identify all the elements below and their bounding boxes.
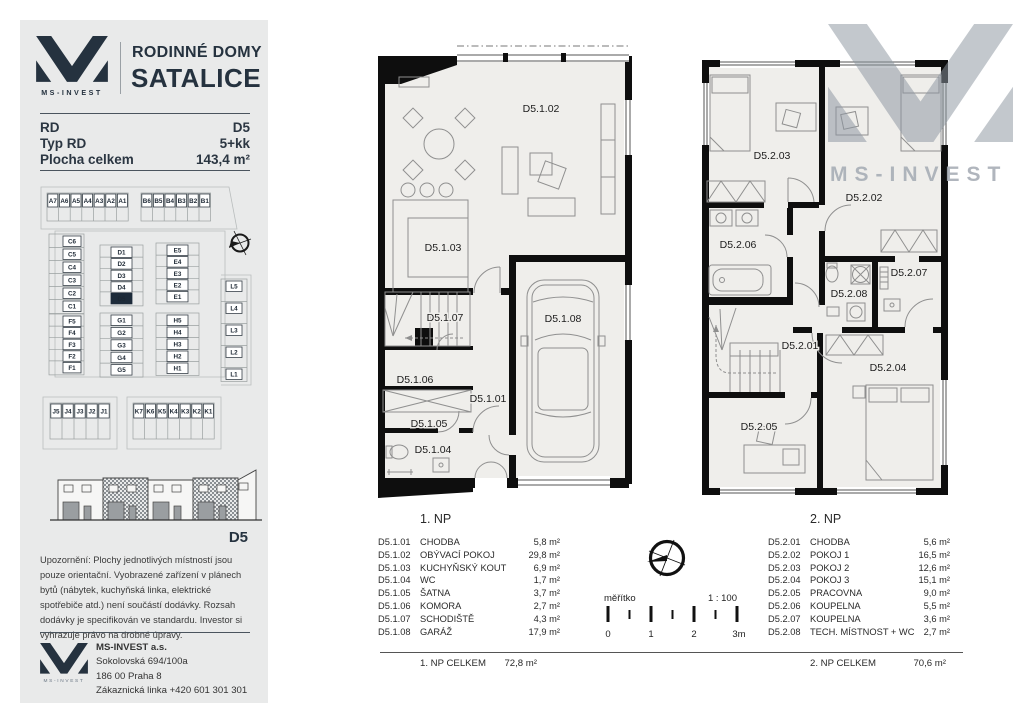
- legend-name: KOMORA: [420, 600, 534, 613]
- site-unit-label: D5: [117, 296, 126, 303]
- legend-row: D5.2.07KOUPELNA3,6 m²: [768, 613, 950, 626]
- watermark-text: MS-INVEST: [830, 163, 1024, 187]
- project-title: SATALICE: [131, 63, 261, 94]
- room-label: D5.2.06: [720, 239, 757, 251]
- scale-tick: 1: [648, 629, 653, 640]
- site-unit-label: J4: [64, 408, 72, 415]
- site-unit-label: H4: [173, 330, 182, 337]
- site-unit-label: H2: [173, 354, 182, 361]
- site-unit-label: C6: [68, 239, 77, 246]
- legend-row: D5.2.06KOUPELNA5,5 m²: [768, 600, 950, 613]
- legend-name: KOUPELNA: [810, 613, 924, 626]
- legend-area: 2,7 m²: [534, 600, 560, 613]
- info-value: 5+kk: [220, 136, 250, 151]
- site-unit-label: A4: [84, 198, 93, 205]
- elevation-drawing: D5: [50, 458, 265, 546]
- site-unit-label: A1: [118, 198, 127, 205]
- site-unit-label: F3: [68, 342, 76, 349]
- company-city: 186 00 Praha 8: [96, 670, 247, 684]
- site-unit-label: A6: [60, 198, 69, 205]
- legend-name: OBÝVACÍ POKOJ: [420, 549, 528, 562]
- site-unit-label: F5: [68, 319, 76, 326]
- total-2np: 2. NP CELKEM 70,6 m²: [810, 658, 946, 669]
- legend-code: D5.1.02: [378, 549, 420, 562]
- legend-code: D5.2.02: [768, 549, 810, 562]
- site-unit-label: K7: [135, 408, 144, 415]
- site-unit-label: B6: [143, 198, 152, 205]
- legend-area: 2,7 m²: [924, 626, 950, 639]
- scale-tick: 3m: [732, 629, 745, 640]
- north-compass-icon: [645, 536, 689, 580]
- room-label: D5.2.07: [891, 267, 928, 279]
- site-unit-label: K2: [193, 408, 202, 415]
- room-label: D5.2.01: [782, 340, 819, 352]
- legend-code: D5.2.05: [768, 587, 810, 600]
- site-unit-label: G1: [117, 318, 126, 325]
- legend-area: 16,5 m²: [918, 549, 950, 562]
- divider: [40, 113, 250, 114]
- site-unit-label: G4: [117, 355, 126, 362]
- room-label: D5.2.02: [846, 192, 883, 204]
- legend-row: D5.1.05ŠATNA3,7 m²: [378, 587, 560, 600]
- header-divider: [120, 42, 121, 94]
- legend-row: D5.1.04WC1,7 m²: [378, 574, 560, 587]
- floor-plan-1np: D5.1.02 D5.1.03 D5.1.07 D5.1.08 D5.1.06 …: [375, 40, 640, 510]
- site-unit-label: D1: [117, 250, 126, 257]
- legend-code: D5.2.07: [768, 613, 810, 626]
- legend-area: 1,7 m²: [534, 574, 560, 587]
- footer-logo-wordmark: MS-INVEST: [43, 678, 84, 684]
- footer-logo-icon: MS-INVEST: [40, 643, 88, 687]
- ms-invest-logo-icon: MS-INVEST: [36, 36, 108, 102]
- info-label: Plocha celkem: [40, 152, 134, 167]
- legend-rows: D5.2.01CHODBA5,6 m²D5.2.02POKOJ 116,5 m²…: [768, 536, 950, 638]
- legend-name: POKOJ 3: [810, 574, 918, 587]
- legend-row: D5.1.07SCHODIŠTĚ4,3 m²: [378, 613, 560, 626]
- legend-row: D5.2.05PRACOVNA9,0 m²: [768, 587, 950, 600]
- info-row-plocha: Plocha celkem 143,4 m²: [40, 152, 250, 167]
- site-unit-label: B1: [201, 198, 210, 205]
- legend-code: D5.1.03: [378, 562, 420, 575]
- site-unit-label: G2: [117, 330, 126, 337]
- site-unit-label: J1: [100, 408, 108, 415]
- room-label: D5.2.04: [870, 362, 907, 374]
- site-unit-label: L4: [230, 306, 238, 313]
- legend-name: POKOJ 2: [810, 562, 918, 575]
- footer-contact: MS-INVEST a.s. Sokolovská 694/100a 186 0…: [96, 641, 247, 699]
- legend-area: 15,1 m²: [918, 574, 950, 587]
- site-unit-label: F1: [68, 365, 76, 372]
- disclaimer-text: Upozornění: Plochy jednotlivých místnost…: [40, 553, 252, 643]
- site-units: A7A6A5A4A3A2A1B6B5B4B3B2B1C6C5C4C3C2C1D1…: [47, 193, 247, 439]
- room-label: D5.1.07: [427, 312, 464, 324]
- legend-area: 6,9 m²: [534, 562, 560, 575]
- scale-bar: 0 1 2 3m: [600, 606, 745, 644]
- legend-row: D5.2.01CHODBA5,6 m²: [768, 536, 950, 549]
- site-unit-label: H1: [173, 366, 182, 373]
- room-label: D5.1.08: [545, 313, 582, 325]
- info-value: D5: [233, 120, 250, 135]
- legend-code: D5.2.04: [768, 574, 810, 587]
- legend-name: PRACOVNA: [810, 587, 924, 600]
- site-unit-label: E1: [174, 294, 182, 301]
- legend-area: 12,6 m²: [918, 562, 950, 575]
- legend-name: GARÁŽ: [420, 626, 528, 639]
- room-label: D5.2.05: [741, 421, 778, 433]
- legend-code: D5.1.01: [378, 536, 420, 549]
- legend-row: D5.1.08GARÁŽ17,9 m²: [378, 626, 560, 639]
- info-row-typ: Typ RD 5+kk: [40, 136, 250, 151]
- legend-name: CHODBA: [420, 536, 534, 549]
- total-1np: 1. NP CELKEM 72,8 m²: [420, 658, 537, 669]
- legend-area: 3,7 m²: [534, 587, 560, 600]
- legend-rows: D5.1.01CHODBA5,8 m²D5.1.02OBÝVACÍ POKOJ2…: [378, 536, 560, 638]
- site-unit-label: K3: [181, 408, 190, 415]
- legend-name: POKOJ 1: [810, 549, 918, 562]
- total-label: 1. NP CELKEM: [420, 658, 486, 669]
- legend-area: 17,9 m²: [528, 626, 560, 639]
- legend-2np: 2. NP D5.2.01CHODBA5,6 m²D5.2.02POKOJ 11…: [768, 512, 950, 638]
- site-unit-label: C5: [68, 252, 77, 259]
- site-unit-label: E4: [174, 259, 182, 266]
- legend-area: 5,8 m²: [534, 536, 560, 549]
- site-unit-label: A3: [95, 198, 104, 205]
- site-plan: A7A6A5A4A3A2A1B6B5B4B3B2B1C6C5C4C3C2C1D1…: [25, 183, 270, 468]
- site-unit-label: L1: [230, 372, 238, 379]
- legend-row: D5.1.02OBÝVACÍ POKOJ29,8 m²: [378, 549, 560, 562]
- info-row-rd: RD D5: [40, 120, 250, 135]
- legend-code: D5.2.08: [768, 626, 810, 639]
- site-unit-label: J3: [76, 408, 84, 415]
- legend-row: D5.1.06KOMORA2,7 m²: [378, 600, 560, 613]
- site-unit-label: K1: [204, 408, 213, 415]
- sidebar-panel: MS-INVEST RODINNÉ DOMY SATALICE RD D5 Ty…: [20, 20, 268, 703]
- site-unit-label: E2: [174, 282, 182, 289]
- info-label: Typ RD: [40, 136, 86, 151]
- legend-title: 2. NP: [810, 512, 950, 526]
- total-value: 70,6 m²: [913, 658, 946, 669]
- scale-tick: 2: [691, 629, 696, 640]
- legend-name: KOUPELNA: [810, 600, 924, 613]
- legend-code: D5.2.06: [768, 600, 810, 613]
- site-unit-label: K4: [170, 408, 179, 415]
- legend-area: 5,6 m²: [924, 536, 950, 549]
- site-unit-label: L5: [230, 284, 238, 291]
- site-unit-label: L2: [230, 350, 238, 357]
- room-label: D5.1.01: [470, 393, 507, 405]
- room-label: D5.1.04: [415, 444, 452, 456]
- elevation-unit-label: D5: [229, 529, 248, 546]
- site-unit-label: A5: [72, 198, 81, 205]
- legend-name: WC: [420, 574, 534, 587]
- site-unit-label: K6: [146, 408, 155, 415]
- legend-area: 29,8 m²: [528, 549, 560, 562]
- legend-name: CHODBA: [810, 536, 924, 549]
- divider: [40, 170, 250, 171]
- legend-row: D5.2.03POKOJ 212,6 m²: [768, 562, 950, 575]
- legend-row: D5.2.04POKOJ 315,1 m²: [768, 574, 950, 587]
- watermark-logo-icon: [828, 24, 1013, 142]
- site-unit-label: E3: [174, 271, 182, 278]
- site-unit-label: G5: [117, 367, 126, 374]
- total-label: 2. NP CELKEM: [810, 658, 876, 669]
- site-unit-label: C2: [68, 291, 77, 298]
- room-label: D5.1.02: [523, 103, 560, 115]
- site-unit-label: B3: [178, 198, 187, 205]
- room-label: D5.1.05: [411, 418, 448, 430]
- site-unit-label: J2: [88, 408, 96, 415]
- site-unit-label: C4: [68, 265, 77, 272]
- site-unit-label: B4: [166, 198, 175, 205]
- legend-code: D5.1.06: [378, 600, 420, 613]
- scale-ratio: 1 : 100: [690, 593, 737, 604]
- legend-1np: 1. NP D5.1.01CHODBA5,8 m²D5.1.02OBÝVACÍ …: [378, 512, 560, 638]
- legend-row: D5.2.02POKOJ 116,5 m²: [768, 549, 950, 562]
- legend-name: KUCHYŇSKÝ KOUT: [420, 562, 534, 575]
- room-label: D5.1.06: [397, 374, 434, 386]
- legend-code: D5.1.08: [378, 626, 420, 639]
- site-compass-icon: [229, 231, 251, 255]
- company-phone: Zákaznická linka +420 601 301 301: [96, 684, 247, 698]
- scale-label: měřítko: [604, 593, 636, 604]
- legend-name: TECH. MÍSTNOST + WC: [810, 626, 924, 639]
- site-unit-label: K5: [158, 408, 167, 415]
- legend-title: 1. NP: [420, 512, 560, 526]
- legend-name: SCHODIŠTĚ: [420, 613, 534, 626]
- legend-code: D5.1.07: [378, 613, 420, 626]
- legend-code: D5.2.01: [768, 536, 810, 549]
- site-unit-label: H5: [173, 318, 182, 325]
- room-label: D5.1.03: [425, 242, 462, 254]
- project-subtitle: RODINNÉ DOMY: [132, 44, 262, 62]
- divider: [40, 632, 250, 633]
- legend-code: D5.2.03: [768, 562, 810, 575]
- legend-code: D5.1.04: [378, 574, 420, 587]
- site-unit-label: B2: [189, 198, 198, 205]
- site-unit-label: B5: [154, 198, 163, 205]
- company-name: MS-INVEST a.s.: [96, 641, 247, 655]
- site-unit-label: L3: [230, 328, 238, 335]
- info-value: 143,4 m²: [196, 152, 250, 167]
- site-unit-label: D4: [117, 284, 126, 291]
- legend-divider-line: [380, 652, 963, 653]
- site-unit-label: A7: [49, 198, 58, 205]
- site-unit-label: H3: [173, 342, 182, 349]
- legend-row: D5.1.01CHODBA5,8 m²: [378, 536, 560, 549]
- legend-area: 5,5 m²: [924, 600, 950, 613]
- scale-tick: 0: [605, 629, 610, 640]
- site-unit-label: D3: [117, 273, 126, 280]
- total-value: 72,8 m²: [504, 658, 537, 669]
- site-unit-label: C3: [68, 278, 77, 285]
- site-unit-label: F2: [68, 353, 76, 360]
- legend-area: 3,6 m²: [924, 613, 950, 626]
- legend-row: D5.2.08TECH. MÍSTNOST + WC2,7 m²: [768, 626, 950, 639]
- site-unit-label: D2: [117, 261, 126, 268]
- legend-name: ŠATNA: [420, 587, 534, 600]
- site-unit-label: C1: [68, 304, 77, 311]
- legend-area: 4,3 m²: [534, 613, 560, 626]
- room-label: D5.2.08: [831, 288, 868, 300]
- site-unit-label: A2: [107, 198, 116, 205]
- site-unit-label: G3: [117, 342, 126, 349]
- logo-wordmark: MS-INVEST: [41, 89, 103, 97]
- room-label: D5.2.03: [754, 150, 791, 162]
- info-label: RD: [40, 120, 60, 135]
- company-street: Sokolovská 694/100a: [96, 655, 247, 669]
- legend-area: 9,0 m²: [924, 587, 950, 600]
- site-unit-label: J5: [52, 408, 60, 415]
- legend-row: D5.1.03KUCHYŇSKÝ KOUT6,9 m²: [378, 562, 560, 575]
- site-unit-label: E5: [174, 248, 182, 255]
- legend-code: D5.1.05: [378, 587, 420, 600]
- site-unit-label: F4: [68, 330, 76, 337]
